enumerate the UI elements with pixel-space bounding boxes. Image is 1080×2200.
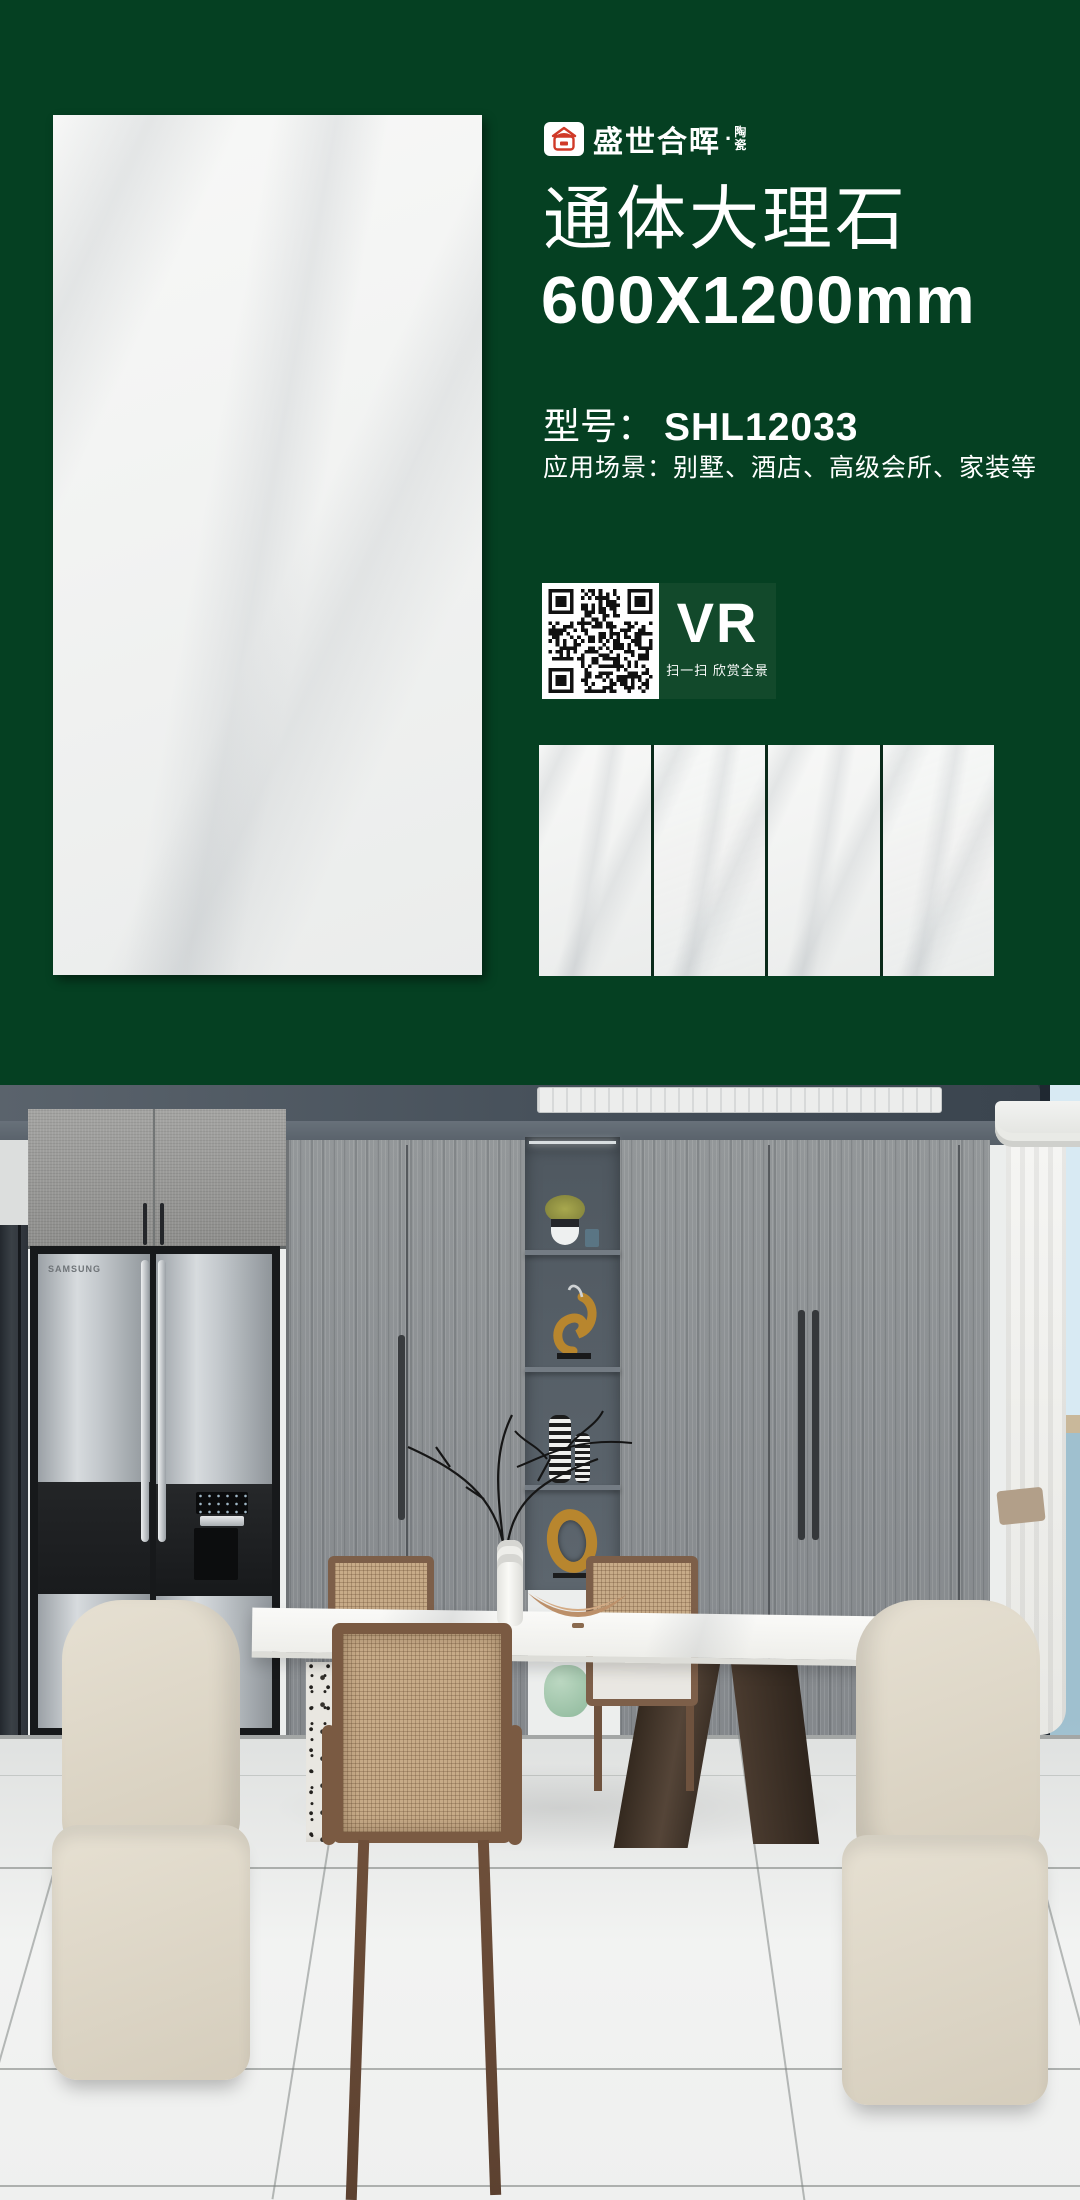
brand-logo: 盛世合晖 · 陶 瓷 [544,117,746,161]
niche-light-strip [529,1141,616,1144]
model-value: SHL12033 [664,406,858,450]
brand-name: 盛世合晖 [593,117,721,161]
chair-leg-br1 [594,1706,602,1791]
niche-shelf-1 [525,1250,620,1255]
poster-page: 盛世合晖 · 陶 瓷 通体大理石 600X1200mm 型号： SHL12033… [0,0,1080,2200]
brand-suffix: 陶 瓷 [734,126,746,152]
armchair-left-back [62,1600,240,1860]
green-pot [544,1665,590,1717]
fridge-handle-left [141,1260,149,1542]
application-label: 应用场景： [543,454,673,482]
dining-chair-front-mesh [343,1634,501,1832]
dining-chair-front-back [332,1623,512,1843]
decor-wood-bowl [526,1583,630,1633]
product-tile-image [53,115,482,975]
armchair-left-seat [52,1825,250,2080]
upper-cabinets [28,1109,286,1249]
fridge-water-spout [200,1516,244,1526]
chair-leg-br2 [686,1706,694,1791]
cabinet-handle-left [143,1203,147,1245]
curtain-valance [995,1101,1080,1147]
curtain-tie-band [996,1487,1045,1526]
fridge-left-black-band [38,1482,150,1594]
model-label: 型号： [543,396,654,450]
brand-suffix-bottom: 瓷 [734,139,746,152]
niche-shelf-2 [525,1367,620,1372]
decor-plant-pot [551,1219,579,1245]
cabinet-handle-right [160,1203,164,1245]
fridge-dispenser-panel [156,1484,272,1596]
decor-blue-box [585,1229,599,1247]
grout-line-h4 [0,2185,1080,2187]
room-scene-photo: SAMSUNG [0,1085,1080,2200]
application-row: 应用场景：别墅、酒店、高级会所、家装等 [543,448,1037,484]
fridge-display [196,1492,248,1514]
product-title: 通体大理石 [543,183,908,257]
tile-thumbnails [539,745,994,976]
dining-chair-front-armrest-right [508,1725,522,1845]
tile-thumbnail-3 [768,745,880,976]
armchair-left [52,1600,250,2085]
glass-door-left [0,1225,28,1737]
vr-label: VR [677,595,759,651]
fridge-handle-right [158,1260,166,1542]
ac-vent-grille [537,1087,942,1113]
tile-thumbnail-2 [654,745,766,976]
armchair-right-back [856,1600,1040,1870]
brand-house-icon [544,122,584,156]
door-handle-pair-left [798,1310,805,1540]
decor-vase-branches [388,1403,613,1563]
model-row: 型号： SHL12033 [543,396,858,450]
cabinet-door-seam [153,1109,155,1246]
fridge-brand-logo: SAMSUNG [48,1264,101,1274]
qr-code [542,583,659,699]
fridge-dispenser-recess [194,1528,238,1580]
glass-door-frame-line [18,1225,21,1737]
application-value: 别墅、酒店、高级会所、家装等 [673,454,1037,482]
brand-dot: · [725,126,732,152]
door-handle-pair-right [812,1310,819,1540]
tile-thumbnail-4 [883,745,995,976]
armchair-right [842,1600,1048,2110]
tile-thumbnail-1 [539,745,651,976]
vr-scan-hint: 扫一扫 欣赏全景 [666,660,769,679]
dining-chair-front-armrest-left [322,1725,336,1845]
decor-white-vase [497,1540,523,1626]
vr-panel: VR 扫一扫 欣赏全景 [659,583,776,699]
product-size: 600X1200mm [541,266,976,336]
armchair-right-seat [842,1835,1048,2105]
left-wall-strip [0,1140,28,1225]
decor-bird-sculpture [547,1277,599,1363]
